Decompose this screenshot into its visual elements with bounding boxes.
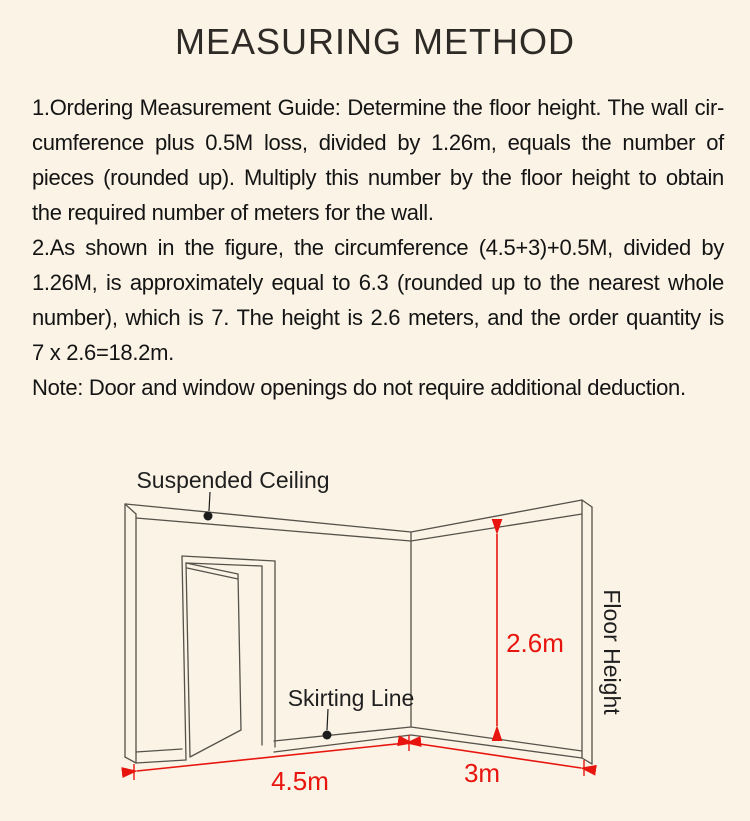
- door: [182, 556, 275, 760]
- skirting-line-label: Skirting Line: [288, 685, 415, 711]
- text-line: 1.26M, is approximately equal to 6.3 (ro…: [32, 265, 724, 300]
- skirting-leader-line: [327, 709, 328, 730]
- text-line: the required number of meters for the wa…: [32, 195, 724, 230]
- ceiling-marker-dot: [204, 512, 213, 521]
- measuring-method-infographic: MEASURING METHOD 1.Ordering Measurement …: [0, 0, 750, 821]
- text-line: 2.As shown in the figure, the circumfere…: [32, 230, 724, 265]
- skirting-marker-dot: [323, 731, 332, 740]
- ceiling-leader-line: [209, 492, 210, 511]
- note-line: Note: Door and window openings do not re…: [32, 370, 724, 405]
- right-wall-dimension-value: 3m: [464, 758, 500, 788]
- text-line: cumference plus 0.5M loss, divided by 1.…: [32, 125, 724, 160]
- left-wall-dimension-value: 4.5m: [271, 766, 329, 796]
- page-title: MEASURING METHOD: [0, 22, 750, 62]
- room-measurement-diagram: Suspended Ceiling Skirting Line Floor He…: [0, 430, 750, 821]
- right-wall: [411, 500, 592, 764]
- floor-height-label: Floor Height: [599, 589, 625, 715]
- text-line: 1.Ordering Measurement Guide: Determine …: [32, 90, 724, 125]
- suspended-ceiling-label: Suspended Ceiling: [136, 467, 329, 493]
- left-wall: [125, 504, 411, 763]
- text-line: pieces (rounded up). Multiply this numbe…: [32, 160, 724, 195]
- height-dimension-value: 2.6m: [506, 628, 564, 658]
- text-line: number), which is 7. The height is 2.6 m…: [32, 300, 724, 335]
- instructions-text-block: 1.Ordering Measurement Guide: Determine …: [32, 90, 724, 405]
- text-line: 7 x 2.6=18.2m.: [32, 335, 724, 370]
